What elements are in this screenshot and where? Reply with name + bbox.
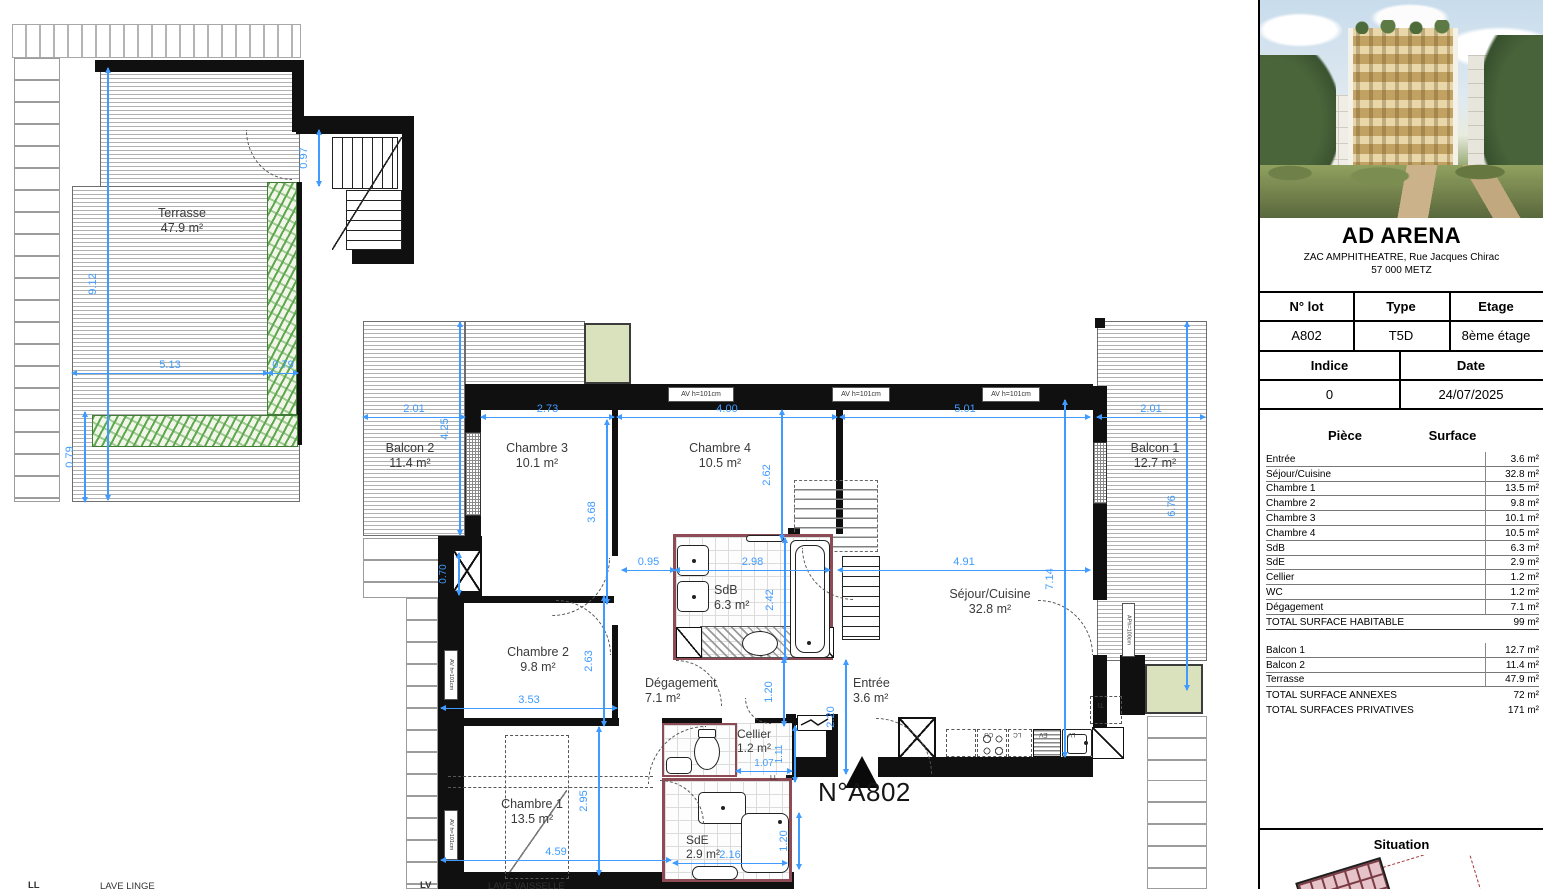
indice-header: Indice bbox=[1260, 358, 1399, 373]
terrace-railing-left bbox=[14, 58, 60, 502]
cooktop-label: CU bbox=[984, 731, 993, 738]
floor-plan: AV h=101cm AV h=101cm APh=100cm AV h=101… bbox=[0, 0, 1258, 889]
lot-header: N° lot bbox=[1260, 299, 1353, 314]
legend-code: LV bbox=[420, 880, 431, 889]
total-annexes-row: TOTAL SURFACE ANNEXES72 m² bbox=[1266, 687, 1539, 702]
project-address-line1: ZAC AMPHITHEATRE, Rue Jacques Chirac bbox=[1260, 252, 1543, 263]
dimension: 2.20 bbox=[837, 660, 855, 774]
window-height-label: AV h=101cm bbox=[444, 650, 458, 700]
type-header: Type bbox=[1353, 299, 1449, 314]
door-swing bbox=[648, 726, 706, 784]
stair-diagonal bbox=[332, 137, 402, 250]
wall bbox=[352, 250, 414, 264]
lc-label: LC bbox=[1013, 731, 1021, 738]
window-height-label: APh=100cm bbox=[1122, 603, 1135, 657]
legend-code: LL bbox=[28, 880, 40, 889]
room-label-entree: Entrée3.6 m² bbox=[853, 676, 913, 706]
cabinet bbox=[676, 627, 702, 658]
surface-row: Chambre 410.5 m² bbox=[1266, 526, 1539, 541]
annex-row: Balcon 211.4 m² bbox=[1266, 658, 1539, 673]
date-value: 24/07/2025 bbox=[1399, 387, 1543, 402]
legend-label: LAVE LINGE bbox=[100, 881, 155, 889]
surface-row: Chambre 29.8 m² bbox=[1266, 496, 1539, 511]
dimension: 0.79 bbox=[76, 412, 94, 502]
dimension: 6.76 bbox=[1178, 322, 1196, 690]
ev-label: EV bbox=[1039, 731, 1048, 738]
room-label-terrasse: Terrasse47.9 m² bbox=[132, 206, 232, 236]
dimension: 1.20 bbox=[775, 658, 793, 726]
annex-row: Balcon 112.7 m² bbox=[1266, 643, 1539, 658]
dimension: 0.70 bbox=[450, 553, 468, 595]
planting-strip bbox=[92, 415, 298, 447]
project-address-line2: 57 000 METZ bbox=[1260, 265, 1543, 276]
table-divider bbox=[1485, 643, 1486, 687]
dimension: 1.07 bbox=[736, 758, 792, 776]
surface-row: Entrée3.6 m² bbox=[1266, 452, 1539, 467]
indice-value: 0 bbox=[1260, 387, 1399, 402]
surface-row: Chambre 310.1 m² bbox=[1266, 511, 1539, 526]
room-label-chambre2: Chambre 29.8 m² bbox=[488, 645, 588, 675]
planter bbox=[584, 323, 631, 384]
window-height-label: AV h=101cm bbox=[982, 387, 1040, 402]
ti-label: TI bbox=[1098, 701, 1104, 708]
window-height-label: AV h=101cm bbox=[832, 387, 890, 402]
surface-row: Dégagement7.1 m² bbox=[1266, 600, 1539, 615]
situation-map bbox=[1260, 855, 1543, 889]
dimension: 7.14 bbox=[1056, 400, 1074, 757]
sink bbox=[677, 581, 709, 612]
wall bbox=[402, 116, 414, 264]
dimension: 2.16 bbox=[673, 850, 787, 868]
dimension: 2.63 bbox=[595, 596, 613, 726]
lot-type: T5D bbox=[1353, 328, 1449, 343]
dimension: 5.01 bbox=[840, 404, 1090, 422]
room-label-chambre3: Chambre 310.1 m² bbox=[487, 441, 587, 471]
aph-label: APh=100cm bbox=[1126, 615, 1132, 645]
wall bbox=[1093, 504, 1107, 600]
lot-floor: 8ème étage bbox=[1449, 328, 1543, 343]
electrical-board bbox=[1090, 696, 1122, 724]
pergola-slats bbox=[12, 24, 301, 58]
balcony-2-deck bbox=[465, 321, 585, 385]
date-header: Date bbox=[1399, 358, 1543, 373]
dimension: 1.20 bbox=[790, 813, 808, 869]
fridge-space bbox=[1092, 727, 1124, 759]
total-habitable-row: TOTAL SURFACE HABITABLE99 m² bbox=[1266, 615, 1539, 630]
room-label-sdb: SdB6.3 m² bbox=[714, 583, 769, 613]
wall bbox=[95, 60, 302, 72]
wall bbox=[441, 718, 619, 726]
surface-row: Chambre 113.5 m² bbox=[1266, 482, 1539, 497]
surface-row: Cellier1.2 m² bbox=[1266, 570, 1539, 585]
annex-row: Terrasse47.9 m² bbox=[1266, 673, 1539, 688]
building-footprint bbox=[1295, 857, 1394, 889]
kitchen-unit bbox=[946, 729, 976, 757]
av-label: AV h=101cm bbox=[681, 391, 721, 398]
unit-number: N°A802 bbox=[818, 777, 911, 808]
dimension: 2.98 bbox=[675, 557, 830, 575]
sink bbox=[698, 792, 746, 824]
bath-mat bbox=[692, 866, 738, 880]
dimension: 5.13 bbox=[72, 360, 268, 378]
lot-number: A802 bbox=[1260, 328, 1353, 343]
wc-bowl bbox=[742, 631, 778, 656]
building-render-image bbox=[1260, 0, 1543, 218]
dimension: 9.12 bbox=[99, 68, 117, 500]
floor-plan-sheet: AV h=101cm AV h=101cm APh=100cm AV h=101… bbox=[0, 0, 1543, 889]
av-label: AV h=101cm bbox=[448, 659, 454, 690]
etage-header: Etage bbox=[1449, 299, 1543, 314]
surface-row: SdE2.9 m² bbox=[1266, 556, 1539, 571]
wall bbox=[1095, 318, 1105, 328]
table-divider bbox=[1485, 452, 1486, 615]
surface-row: SdB6.3 m² bbox=[1266, 541, 1539, 556]
room-label-chambre4: Chambre 410.5 m² bbox=[670, 441, 770, 471]
dimension: 2.42 bbox=[776, 538, 794, 662]
piece-header: Pièce bbox=[1300, 428, 1390, 443]
dimension: 3.68 bbox=[598, 420, 616, 604]
surface-row: Séjour/Cuisine32.8 m² bbox=[1266, 467, 1539, 482]
ll-marker: LL bbox=[770, 775, 778, 782]
av-label: AV h=101cm bbox=[991, 391, 1031, 398]
room-label-chambre1: Chambre 113.5 m² bbox=[482, 797, 582, 827]
dimension: 2.73 bbox=[481, 404, 614, 422]
planting-strip bbox=[267, 182, 297, 415]
surface-header: Surface bbox=[1410, 428, 1495, 443]
project-title: AD ARENA bbox=[1260, 223, 1543, 249]
railing bbox=[363, 538, 441, 598]
situation-title: Situation bbox=[1260, 837, 1543, 852]
drain bbox=[807, 641, 811, 645]
railing bbox=[1147, 780, 1207, 889]
garden-bushes bbox=[1260, 158, 1543, 188]
wardrobe-outline bbox=[448, 776, 653, 788]
dimension: 4.25 bbox=[451, 322, 469, 535]
total-privatives-row: TOTAL SURFACES PRIVATIVES171 m² bbox=[1266, 702, 1539, 717]
railing bbox=[406, 598, 438, 889]
dimension: 3.53 bbox=[441, 695, 617, 713]
surface-row: WC1.2 m² bbox=[1266, 585, 1539, 600]
window-height-label: AV h=101cm bbox=[668, 387, 734, 402]
room-label-sejour: Séjour/Cuisine32.8 m² bbox=[935, 587, 1045, 617]
title-block-panel: AD ARENA ZAC AMPHITHEATRE, Rue Jacques C… bbox=[1258, 0, 1543, 889]
roof-greenery bbox=[1350, 20, 1456, 34]
av-label: AV h=101cm bbox=[841, 391, 881, 398]
dimension: 4.59 bbox=[441, 847, 671, 865]
dimension: 2.62 bbox=[773, 410, 791, 540]
dimension: 0.97 bbox=[310, 130, 328, 186]
dimension: 0.79 bbox=[268, 360, 298, 378]
legend-label: LAVE VAISSELLE bbox=[488, 881, 565, 889]
dimension: 4.00 bbox=[617, 404, 837, 422]
dimension: 0.95 bbox=[622, 557, 675, 575]
wall bbox=[1120, 655, 1145, 715]
room-label-degagement: Dégagement7.1 m² bbox=[645, 676, 750, 706]
